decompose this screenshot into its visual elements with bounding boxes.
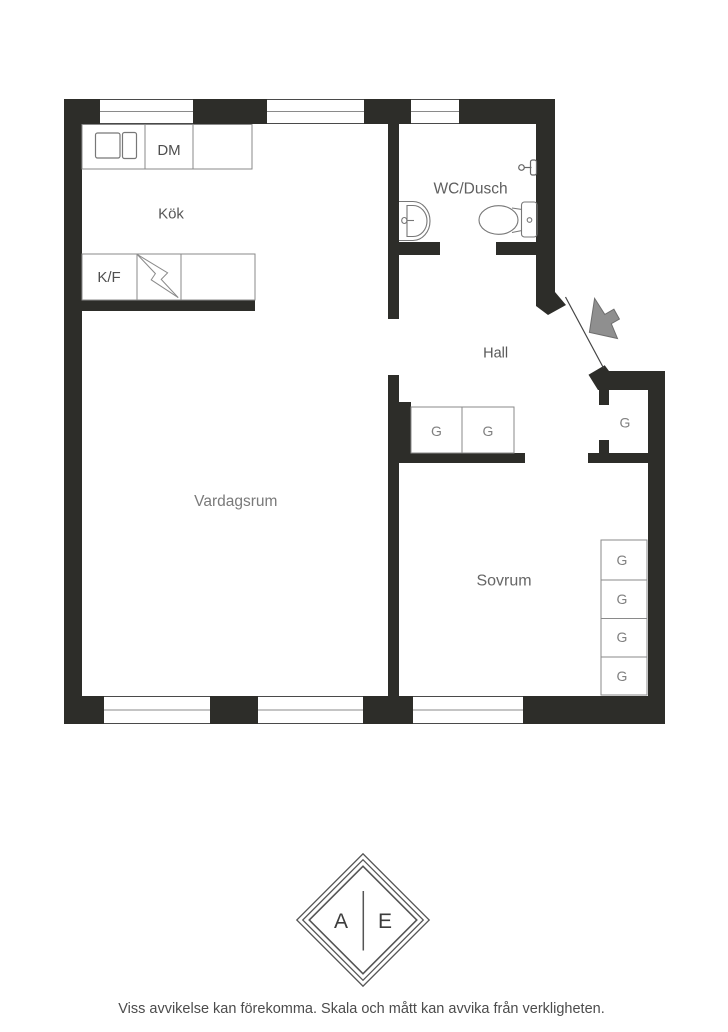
svg-text:G: G — [617, 668, 628, 684]
svg-text:G: G — [431, 423, 442, 439]
svg-text:K/F: K/F — [97, 269, 120, 286]
svg-text:G: G — [617, 552, 628, 568]
svg-text:G: G — [617, 591, 628, 607]
svg-text:DM: DM — [157, 142, 180, 159]
svg-text:Viss avvikelse kan förekomma.: Viss avvikelse kan förekomma. Skala och … — [118, 1001, 605, 1017]
svg-text:G: G — [483, 423, 494, 439]
svg-text:E: E — [378, 910, 392, 933]
svg-text:Kök: Kök — [158, 205, 184, 222]
svg-text:Sovrum: Sovrum — [476, 573, 531, 590]
svg-text:G: G — [620, 415, 631, 431]
svg-text:WC/Dusch: WC/Dusch — [434, 180, 508, 197]
svg-text:Hall: Hall — [483, 346, 508, 362]
svg-text:G: G — [617, 629, 628, 645]
svg-text:A: A — [334, 910, 348, 933]
svg-text:Vardagsrum: Vardagsrum — [194, 493, 277, 510]
